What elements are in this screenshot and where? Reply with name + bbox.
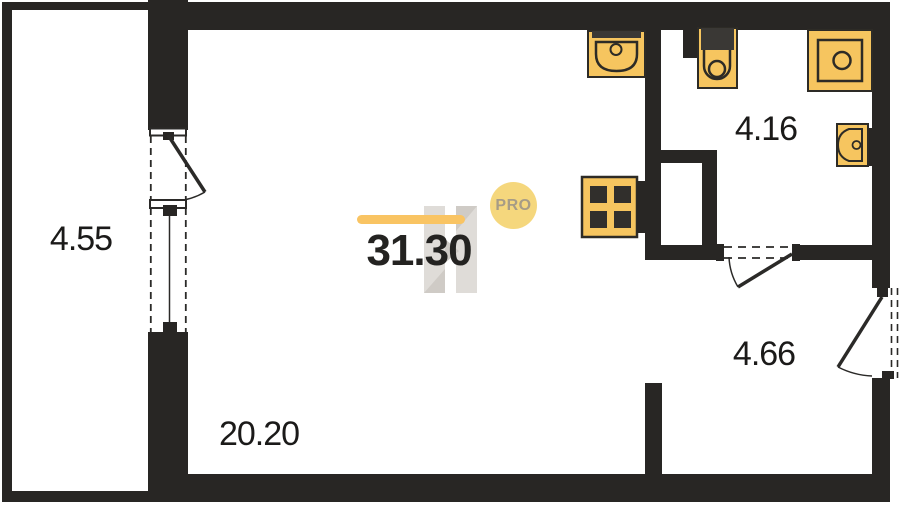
stove-icon: [582, 177, 646, 237]
entrance-door: [838, 288, 898, 378]
bathroom-door: [724, 247, 792, 287]
total-area-value: 31.30: [354, 228, 484, 274]
kitchen-sink-backsplash: [592, 31, 641, 38]
bathroom-door-swing-arc: [729, 257, 738, 287]
wall-right-upper: [872, 2, 890, 280]
toilet-tank: [701, 28, 734, 50]
hallway-area-label: 4.66: [699, 337, 829, 371]
pro-badge: PRO: [490, 182, 537, 229]
bathroom-door-leaf: [738, 254, 792, 287]
wall-top: [188, 2, 890, 30]
balcony-door-window: [148, 129, 205, 341]
wall-hallway-stub: [645, 383, 662, 474]
living-area-label: 20.20: [194, 417, 324, 451]
wall-bottom: [148, 474, 890, 502]
wall-bathroom-bottom-right: [800, 245, 872, 260]
kitchen-sink-icon: [588, 31, 645, 77]
wall-partition-upper: [148, 0, 188, 130]
stove-burner-2: [614, 186, 631, 203]
window-handle-top: [163, 205, 177, 216]
stove-burner-4: [614, 211, 631, 228]
bathroom-area-label: 4.16: [701, 112, 831, 146]
floor-plan: 4.55 20.20 4.16 4.66 31.30 PRO: [0, 0, 900, 505]
stove-burner-3: [590, 211, 607, 228]
door-post-right: [792, 244, 800, 261]
entrance-hinge-post: [877, 288, 888, 297]
stove-burner-1: [590, 186, 607, 203]
shower-icon: [808, 30, 872, 91]
balcony-area-label: 4.55: [16, 222, 146, 256]
wall-bathroom-bottom-left: [645, 245, 716, 260]
wall-balcony-top: [2, 2, 150, 10]
wall-entrance-top-cap: [872, 280, 890, 288]
wall-right-lower: [872, 388, 890, 502]
window-bottom-sill: [148, 332, 188, 340]
balcony-door-leaf: [168, 135, 205, 192]
stove-wall-connector: [637, 181, 646, 233]
pro-badge-label: PRO: [495, 197, 531, 215]
wall-balcony-bottom: [12, 491, 148, 502]
wall-shaft-right: [702, 163, 717, 245]
entrance-door-swing-arc: [838, 367, 872, 376]
window-handle-bottom: [163, 322, 177, 333]
wall-entrance-bottom-cap: [872, 378, 890, 388]
total-area-accent-bar: [357, 215, 465, 224]
wall-toilet-stub: [683, 30, 698, 58]
wall-shaft-top: [661, 150, 717, 163]
wall-bathroom-left: [645, 30, 661, 260]
entrance-door-leaf: [838, 297, 882, 367]
bath-sink-icon: [837, 124, 868, 166]
toilet-icon: [698, 28, 737, 88]
wall-left: [2, 2, 12, 502]
door-post-left: [716, 244, 724, 261]
